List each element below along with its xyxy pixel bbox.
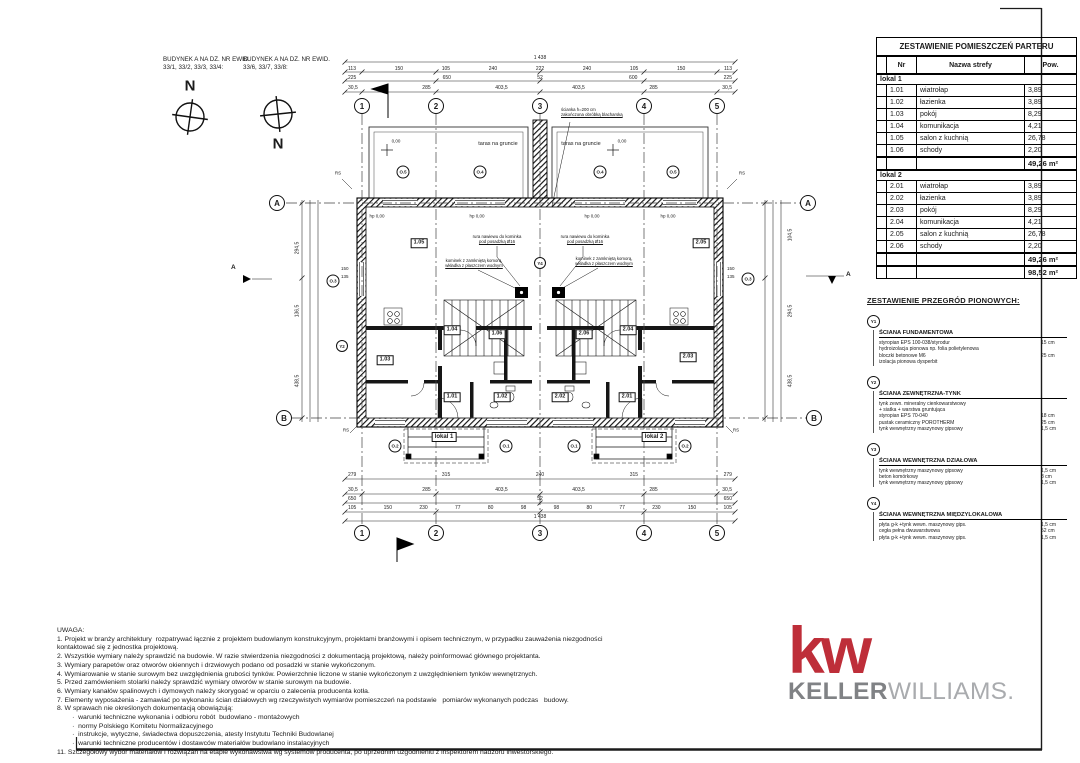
lokal2-sum: 49,26 m²	[1025, 253, 1077, 266]
building-label-1: BUDYNEK A NA DZ. NR EWID. 33/1, 33/2, 33…	[163, 56, 250, 72]
rs-label-3: RS	[343, 427, 349, 433]
lokal1-sum: 49,26 m²	[1025, 157, 1077, 170]
rs-label-2: RS	[739, 170, 745, 176]
window-mark-top-1: O.5	[397, 166, 410, 179]
kw-logo-icon: kw	[788, 622, 1014, 678]
annotation-parapet: ścianka h=200 cm zakończona obróbką blac…	[561, 107, 641, 118]
drawing-sheet: BUDYNEK A NA DZ. NR EWID. 33/1, 33/2, 33…	[0, 0, 1080, 763]
cell-name: salon z kuchnią	[917, 133, 1025, 145]
layer-name: tynk wewnętrzny maszynowy gipsowy	[879, 480, 1041, 486]
room-label-1-02: 1.02	[494, 392, 511, 402]
table-row: 1.06schody2,20	[877, 145, 1077, 158]
hp-label-2: hp 0,00	[469, 213, 484, 219]
building-label-1-line1: BUDYNEK A NA DZ. NR EWID.	[163, 56, 250, 64]
annotation-fireplace-left: kominek z zamkniętą komorą, wkładka z pł…	[436, 258, 512, 269]
grid-bubble-3-bottom: 3	[532, 525, 548, 541]
cell-nr: 2.03	[887, 205, 917, 217]
layer-row: izolacja pionowa dysperbit	[879, 359, 1067, 365]
partition-y1-name: ŚCIANA FUNDAMENTOWA	[879, 330, 1067, 338]
grid-bubble-5-top: 5	[709, 98, 725, 114]
annotation-vent-left: rura nawiewu do kominka pod posadzką Ø16	[458, 234, 536, 245]
dim-top-row2: 113150105240222240105150113	[348, 66, 732, 72]
partition-item-y1: Y1 ŚCIANA FUNDAMENTOWA styropian EPS 100…	[867, 315, 1067, 366]
cell-name: komunikacja	[917, 217, 1025, 229]
partition-item-y3: Y3 ŚCIANA WEWNĘTRZNA DZIAŁOWA tynk wewnę…	[867, 443, 1067, 487]
layer-row: płyta g-k +tynk wewn. maszynowy gips.1,5…	[879, 535, 1067, 541]
dim-bottom-row2: 30,5285403,5403,528530,5	[348, 487, 732, 493]
cell-area: 2,20	[1025, 241, 1077, 254]
grid-bubble-3-top: 3	[532, 98, 548, 114]
partitions-title: ZESTAWIENIE PRZEGRÓD PIONOWYCH:	[867, 296, 1067, 305]
cell-area: 4,21	[1025, 217, 1077, 229]
room-label-2-04: 2.04	[620, 325, 637, 335]
cell-name: łazienka	[917, 193, 1025, 205]
window-mark-bottom-3: O.1	[568, 440, 581, 453]
cell-name: schody	[917, 145, 1025, 158]
layer-value: 1,5 cm	[1041, 426, 1067, 432]
terrace-label-left: taras na gruncie	[478, 141, 517, 148]
terrace-label-right: taras na gruncie	[561, 141, 600, 148]
cell-nr: 1.03	[887, 109, 917, 121]
dim-side-window-left-2: 135	[341, 274, 349, 280]
cell-nr: 1.04	[887, 121, 917, 133]
table-row: 2.02łazienka3,89	[877, 193, 1077, 205]
cell-area: 26,78	[1025, 133, 1077, 145]
window-mark-side-right: O.3	[742, 273, 755, 286]
lokal-1-label: lokal 1	[432, 432, 457, 442]
table-row-sum: 49,26 m²	[877, 253, 1077, 266]
room-label-2-05: 2.05	[693, 238, 710, 248]
grid-bubble-1-bottom: 1	[354, 525, 370, 541]
cell-nr: 2.01	[887, 181, 917, 193]
dim-left-2: 136,5	[294, 305, 300, 318]
hp-label-1: hp 0,00	[369, 213, 384, 219]
cell-nr: 1.06	[887, 145, 917, 158]
cell-name: schody	[917, 241, 1025, 254]
cell-name: wiatrołap	[917, 181, 1025, 193]
building-label-2: BUDYNEK A NA DZ. NR EWID. 33/6, 33/7, 33…	[243, 56, 330, 72]
section-marker-A-left-arrow-icon	[243, 275, 251, 283]
keller-williams-wordmark: KELLERWILLIAMS.	[788, 678, 1014, 706]
rooms-table-col-nr: Nr	[887, 56, 917, 74]
williams-text: WILLIAMS.	[888, 678, 1015, 705]
table-row: 1.01wiatrołap3,89	[877, 85, 1077, 97]
dim-side-window-left-1: 150	[341, 266, 349, 272]
partition-y4-mark: Y4	[867, 497, 880, 510]
cell-name: łazienka	[917, 97, 1025, 109]
notes-block: UWAGA: 1. Projekt w branży architektury …	[57, 627, 697, 758]
cell-area: 4,21	[1025, 121, 1077, 133]
notes-lines: 1. Projekt w branży architektury rozpatr…	[57, 636, 697, 758]
building-label-2-line2: 33/6, 33/7, 33/8:	[243, 64, 330, 72]
window-mark-top-4: O.5	[667, 166, 680, 179]
table-row: 1.02łazienka3,89	[877, 97, 1077, 109]
grid-bubble-1-top: 1	[354, 98, 370, 114]
cell-name: komunikacja	[917, 121, 1025, 133]
annotation-vent-right-line2: pod posadzką Ø16	[546, 239, 624, 244]
partition-mark-y4: Y4	[534, 257, 546, 269]
room-label-1-03: 1.03	[377, 355, 394, 365]
hp-label-3: hp 0,00	[584, 213, 599, 219]
layer-value: 1,5 cm	[1041, 535, 1067, 541]
dim-bottom-total: 1 438	[345, 514, 735, 520]
dim-top-row3: 22565052600225	[348, 75, 732, 81]
cell-area: 26,78	[1025, 229, 1077, 241]
level-zero-right: 0,00	[618, 138, 627, 144]
window-mark-bottom-4: O.2	[679, 440, 692, 453]
table-row: 2.01wiatrołap3,89	[877, 181, 1077, 193]
window-mark-top-3: O.4	[594, 166, 607, 179]
cell-area: 3,89	[1025, 193, 1077, 205]
room-label-2-02: 2.02	[552, 392, 569, 402]
partition-y2-mark: Y2	[867, 376, 880, 389]
annotation-parapet-line2: zakończona obróbką blacharską	[561, 112, 641, 117]
dim-side-window-right-2: 135	[727, 274, 735, 280]
partition-y1-mark: Y1	[867, 315, 880, 328]
dim-top-total: 1 438	[345, 55, 735, 61]
dim-top-row4: 30,5285403,5403,528530,5	[348, 85, 732, 91]
building-label-2-line1: BUDYNEK A NA DZ. NR EWID.	[243, 56, 330, 64]
room-label-2-01: 2.01	[619, 392, 636, 402]
total-area: 98,52 m²	[1025, 266, 1077, 279]
cell-nr: 1.05	[887, 133, 917, 145]
dim-bottom-row1: 279315240315279	[348, 472, 732, 478]
cell-area: 3,89	[1025, 181, 1077, 193]
rooms-schedule-table: ZESTAWIENIE POMIESZCZEŃ PARTERU Nr Nazwa…	[876, 37, 1076, 279]
annotation-vent-right: rura nawiewu do kominka pod posadzką Ø16	[546, 234, 624, 245]
grid-bubble-2-top: 2	[428, 98, 444, 114]
grid-bubble-2-bottom: 2	[428, 525, 444, 541]
grid-bubble-5-bottom: 5	[709, 525, 725, 541]
north-letter-1: N	[185, 78, 196, 95]
cell-area: 3,89	[1025, 85, 1077, 97]
cell-area: 2,20	[1025, 145, 1077, 158]
layer-value	[1041, 359, 1067, 365]
cell-area: 8,29	[1025, 205, 1077, 217]
dim-left-3: 438,5	[294, 375, 300, 388]
room-label-1-01: 1.01	[444, 392, 461, 402]
cell-area: 3,89	[1025, 97, 1077, 109]
section-marker-A-left-label: A	[231, 264, 236, 271]
partition-y1-body: ŚCIANA FUNDAMENTOWA styropian EPS 100-03…	[873, 330, 1067, 366]
partition-item-y4: Y4 ŚCIANA WEWNĘTRZNA MIĘDZYLOKALOWA płyt…	[867, 497, 1067, 541]
terrace-right	[552, 127, 708, 198]
room-label-1-04: 1.04	[444, 325, 461, 335]
room-label-2-03: 2.03	[680, 352, 697, 362]
rooms-table-group-1: lokal 1	[877, 74, 1077, 85]
partition-y2-body: ŚCIANA ZEWNĘTRZNA-TYNK tynk zewn. minera…	[873, 391, 1067, 433]
layer-row: tynk wewnętrzny maszynowy gipsowy1,5 cm	[879, 426, 1067, 432]
room-label-1-06: 1.06	[489, 329, 506, 339]
table-row: 2.04komunikacja4,21	[877, 217, 1077, 229]
cell-name: salon z kuchnią	[917, 229, 1025, 241]
cell-nr: 2.05	[887, 229, 917, 241]
dim-bottom-row4: 105150230778098988077230150105	[348, 505, 732, 511]
grid-bubble-B-right: B	[806, 410, 822, 426]
partition-y3-body: ŚCIANA WEWNĘTRZNA DZIAŁOWA tynk wewnętrz…	[873, 458, 1067, 487]
window-mark-bottom-2: O.1	[500, 440, 513, 453]
compass-rose-1	[170, 97, 211, 138]
table-row-total: 98,52 m²	[877, 266, 1077, 279]
table-row: 2.05salon z kuchnią26,78	[877, 229, 1077, 241]
rooms-schedule: ZESTAWIENIE POMIESZCZEŃ PARTERU Nr Nazwa…	[876, 37, 1077, 279]
cell-nr: 2.02	[887, 193, 917, 205]
room-label-1-05: 1.05	[411, 238, 428, 248]
grid-bubble-4-bottom: 4	[636, 525, 652, 541]
layer-name: płyta g-k +tynk wewn. maszynowy gips.	[879, 535, 1041, 541]
cell-nr: 2.06	[887, 241, 917, 254]
table-row: 2.06schody2,20	[877, 241, 1077, 254]
annotation-fireplace-right: kominek z zamkniętą komorą, wkładka z pł…	[566, 256, 642, 267]
dim-left-1: 294,5	[294, 242, 300, 255]
rooms-table-col-name: Nazwa strefy	[917, 56, 1025, 74]
layer-name: izolacja pionowa dysperbit	[879, 359, 1041, 365]
keller-williams-logo: kw KELLERWILLIAMS.	[788, 622, 1014, 706]
rooms-table-col-area: Pow.	[1025, 56, 1077, 74]
keller-text: KELLER	[788, 678, 888, 705]
lokal-2-label: lokal 2	[642, 432, 667, 442]
partition-mark-y2: Y2	[336, 340, 348, 352]
table-row: 2.03pokój8,29	[877, 205, 1077, 217]
rs-label-1: RS	[335, 170, 341, 176]
cell-name: pokój	[917, 109, 1025, 121]
cell-name: pokój	[917, 205, 1025, 217]
north-letter-2: N	[273, 136, 284, 153]
layer-name: tynk wewnętrzny maszynowy gipsowy	[879, 426, 1041, 432]
rooms-table-title: ZESTAWIENIE POMIESZCZEŃ PARTERU	[877, 38, 1077, 57]
partitions-list: ZESTAWIENIE PRZEGRÓD PIONOWYCH: Y1 ŚCIAN…	[867, 296, 1067, 541]
dim-right-2: 294,5	[787, 305, 793, 318]
partition-y2-name: ŚCIANA ZEWNĘTRZNA-TYNK	[879, 391, 1067, 399]
dim-bottom-row3: 65052650	[348, 496, 732, 502]
section-marker-A-right-arrow-icon	[828, 276, 836, 284]
notes-title: UWAGA:	[57, 627, 697, 636]
grid-bubble-A-right: A	[800, 195, 816, 211]
window-mark-top-2: O.4	[474, 166, 487, 179]
cell-nr: 1.02	[887, 97, 917, 109]
rooms-table-gutter	[877, 56, 887, 74]
section-marker-A-right-label: A	[846, 271, 851, 278]
table-row: 1.05salon z kuchnią26,78	[877, 133, 1077, 145]
grid-bubble-B-left: B	[276, 410, 292, 426]
cell-name: wiatrołap	[917, 85, 1025, 97]
table-row: 1.04komunikacja4,21	[877, 121, 1077, 133]
partition-y4-name: ŚCIANA WEWNĘTRZNA MIĘDZYLOKALOWA	[879, 512, 1067, 520]
building-label-1-line2: 33/1, 33/2, 33/3, 33/4:	[163, 64, 250, 72]
partition-y4-body: ŚCIANA WEWNĘTRZNA MIĘDZYLOKALOWA płyta g…	[873, 512, 1067, 541]
cell-nr: 1.01	[887, 85, 917, 97]
rooms-table-group-2: lokal 2	[877, 170, 1077, 181]
level-zero-left: 0,00	[392, 138, 401, 144]
annotation-fireplace-left-line2: wkładka z płaszczem wodnym	[436, 263, 512, 268]
dim-right-1: 104,5	[787, 229, 793, 242]
dim-side-window-right-1: 150	[727, 266, 735, 272]
grid-bubble-A-left: A	[269, 195, 285, 211]
window-mark-side-left: O.3	[327, 275, 340, 288]
dim-right-3: 438,5	[787, 375, 793, 388]
annotation-fireplace-right-line2: wkładka z płaszczem wodnym	[566, 261, 642, 266]
cell-nr: 2.04	[887, 217, 917, 229]
room-label-2-06: 2.06	[576, 329, 593, 339]
partition-item-y2: Y2 ŚCIANA ZEWNĘTRZNA-TYNK tynk zewn. min…	[867, 376, 1067, 433]
compass-rose-2	[258, 94, 298, 134]
window-mark-bottom-1: O.2	[389, 440, 402, 453]
cell-area: 8,29	[1025, 109, 1077, 121]
partition-y3-name: ŚCIANA WEWNĘTRZNA DZIAŁOWA	[879, 458, 1067, 466]
partition-y3-mark: Y3	[867, 443, 880, 456]
table-row-sum: 49,26 m²	[877, 157, 1077, 170]
table-row: 1.03pokój8,29	[877, 109, 1077, 121]
layer-value: 1,5 cm	[1041, 480, 1067, 486]
hp-label-4: hp 0,00	[660, 213, 675, 219]
annotation-vent-left-line2: pod posadzką Ø16	[458, 239, 536, 244]
rs-label-4: RS	[733, 427, 739, 433]
layer-row: tynk wewnętrzny maszynowy gipsowy1,5 cm	[879, 480, 1067, 486]
